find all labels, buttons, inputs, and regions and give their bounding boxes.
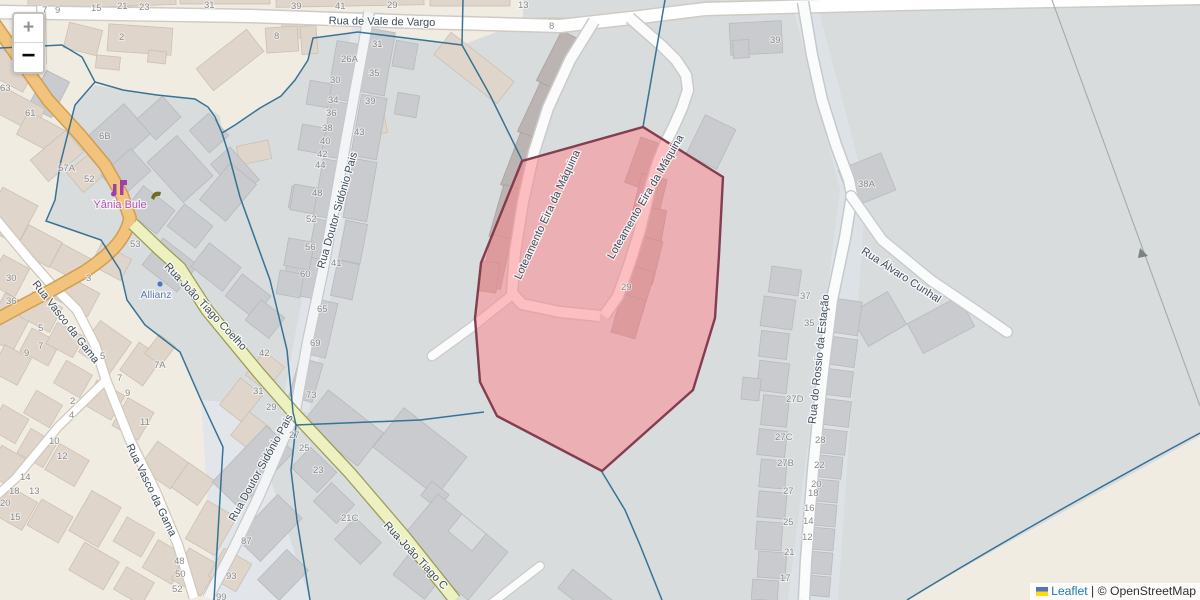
svg-text:73: 73 bbox=[306, 390, 317, 401]
svg-text:41: 41 bbox=[331, 258, 342, 269]
svg-text:30: 30 bbox=[6, 273, 17, 284]
svg-text:99: 99 bbox=[216, 592, 227, 600]
svg-text:29: 29 bbox=[621, 282, 632, 293]
svg-text:16: 16 bbox=[804, 503, 815, 514]
svg-text:5: 5 bbox=[100, 351, 105, 362]
svg-text:63: 63 bbox=[0, 83, 11, 94]
svg-text:18: 18 bbox=[9, 486, 20, 497]
svg-text:Yânia Bule: Yânia Bule bbox=[93, 199, 146, 211]
svg-text:35: 35 bbox=[804, 318, 815, 329]
svg-text:11: 11 bbox=[140, 417, 150, 428]
svg-text:39: 39 bbox=[365, 96, 376, 107]
svg-text:87: 87 bbox=[241, 536, 252, 547]
svg-text:53: 53 bbox=[130, 239, 141, 250]
svg-text:15: 15 bbox=[91, 3, 102, 14]
svg-text:42: 42 bbox=[317, 149, 328, 160]
svg-text:37: 37 bbox=[800, 291, 811, 302]
svg-text:27B: 27B bbox=[777, 458, 794, 469]
svg-text:26A: 26A bbox=[341, 54, 359, 65]
svg-text:25: 25 bbox=[783, 517, 794, 528]
svg-text:52: 52 bbox=[172, 584, 183, 595]
svg-text:21: 21 bbox=[784, 547, 795, 558]
svg-text:44: 44 bbox=[315, 160, 326, 171]
svg-text:13: 13 bbox=[518, 0, 529, 11]
svg-text:36: 36 bbox=[6, 296, 17, 307]
svg-text:57A: 57A bbox=[58, 163, 76, 174]
svg-text:65: 65 bbox=[317, 304, 328, 315]
svg-text:7: 7 bbox=[38, 341, 43, 352]
svg-text:31: 31 bbox=[253, 386, 264, 397]
svg-text:2: 2 bbox=[70, 396, 75, 407]
svg-text:48: 48 bbox=[174, 556, 185, 567]
svg-text:7: 7 bbox=[117, 373, 122, 384]
svg-text:4: 4 bbox=[69, 410, 74, 421]
svg-text:29: 29 bbox=[387, 0, 398, 11]
svg-text:28: 28 bbox=[815, 435, 826, 446]
svg-text:9: 9 bbox=[55, 5, 60, 16]
svg-text:8: 8 bbox=[274, 31, 279, 42]
svg-text:13: 13 bbox=[29, 486, 40, 497]
svg-text:23: 23 bbox=[313, 465, 324, 476]
svg-text:7A: 7A bbox=[154, 360, 166, 371]
svg-text:27: 27 bbox=[289, 430, 300, 441]
svg-text:56: 56 bbox=[305, 242, 316, 253]
svg-text:2: 2 bbox=[119, 32, 124, 43]
svg-text:93: 93 bbox=[226, 571, 237, 582]
svg-text:52: 52 bbox=[84, 174, 95, 185]
svg-text:27D: 27D bbox=[786, 394, 804, 405]
svg-text:35: 35 bbox=[369, 68, 380, 79]
svg-text:6B: 6B bbox=[99, 131, 111, 142]
svg-text:30: 30 bbox=[330, 75, 341, 86]
svg-text:3: 3 bbox=[86, 273, 91, 284]
svg-text:60: 60 bbox=[300, 269, 311, 280]
svg-text:12: 12 bbox=[802, 532, 813, 543]
svg-text:39: 39 bbox=[770, 35, 781, 46]
svg-text:61: 61 bbox=[25, 108, 36, 119]
svg-text:41: 41 bbox=[335, 1, 346, 12]
svg-text:31: 31 bbox=[372, 39, 383, 50]
svg-text:5: 5 bbox=[38, 323, 43, 334]
svg-text:36: 36 bbox=[326, 108, 337, 119]
svg-text:Rua de Vale de Vargo: Rua de Vale de Vargo bbox=[329, 15, 436, 29]
svg-text:8: 8 bbox=[549, 21, 554, 32]
svg-text:25: 25 bbox=[299, 443, 310, 454]
svg-text:48: 48 bbox=[312, 188, 323, 199]
svg-text:20: 20 bbox=[0, 498, 11, 509]
svg-text:42: 42 bbox=[259, 348, 270, 359]
svg-text:29: 29 bbox=[266, 402, 277, 413]
svg-text:14: 14 bbox=[803, 516, 814, 527]
svg-text:12: 12 bbox=[57, 451, 68, 462]
svg-text:9: 9 bbox=[125, 388, 130, 399]
svg-text:9: 9 bbox=[24, 348, 29, 359]
svg-text:39: 39 bbox=[291, 1, 302, 12]
svg-text:38: 38 bbox=[322, 123, 333, 134]
svg-text:18: 18 bbox=[808, 488, 819, 499]
svg-text:21: 21 bbox=[117, 1, 128, 12]
svg-text:21C: 21C bbox=[341, 513, 359, 524]
svg-text:43: 43 bbox=[354, 127, 365, 138]
svg-text:34: 34 bbox=[328, 95, 339, 106]
svg-text:10: 10 bbox=[49, 436, 60, 447]
svg-text:15: 15 bbox=[10, 512, 21, 523]
svg-text:27C: 27C bbox=[775, 432, 793, 443]
svg-text:17: 17 bbox=[780, 573, 791, 584]
svg-text:27: 27 bbox=[783, 486, 794, 497]
svg-text:23: 23 bbox=[139, 2, 150, 13]
svg-text:69: 69 bbox=[310, 338, 321, 349]
svg-text:38A: 38A bbox=[858, 179, 876, 190]
svg-text:Allianz: Allianz bbox=[141, 289, 172, 301]
svg-text:50: 50 bbox=[175, 569, 186, 580]
svg-text:52: 52 bbox=[306, 214, 317, 225]
svg-text:14: 14 bbox=[20, 472, 31, 483]
svg-text:31: 31 bbox=[204, 0, 215, 11]
svg-text:22: 22 bbox=[814, 460, 825, 471]
svg-text:40: 40 bbox=[320, 136, 331, 147]
